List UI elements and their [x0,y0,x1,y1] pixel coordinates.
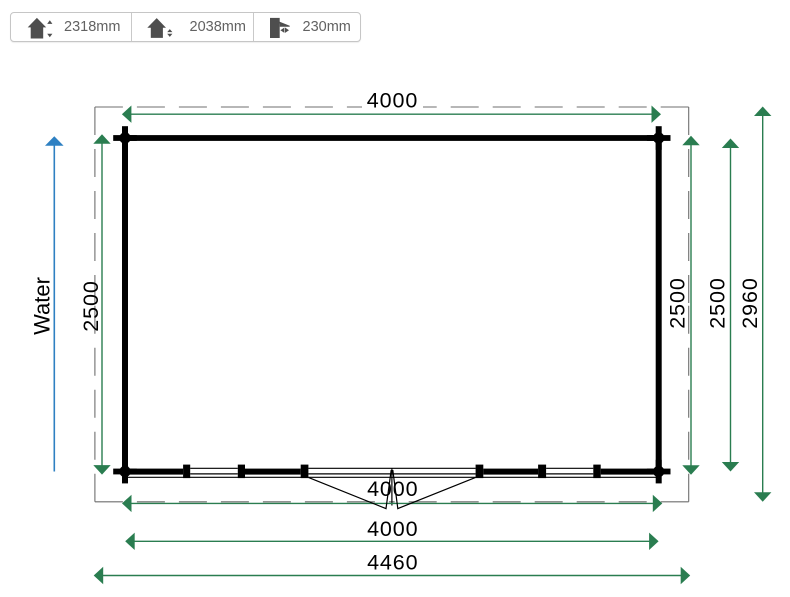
svg-text:4000: 4000 [367,517,418,541]
svg-text:2500: 2500 [706,277,730,328]
svg-text:4000: 4000 [367,88,418,112]
svg-text:4000: 4000 [367,477,418,501]
svg-text:2960: 2960 [738,277,762,328]
svg-text:4460: 4460 [367,550,418,574]
svg-text:Water: Water [30,277,55,335]
svg-text:2500: 2500 [79,280,103,331]
svg-text:2500: 2500 [666,277,690,328]
